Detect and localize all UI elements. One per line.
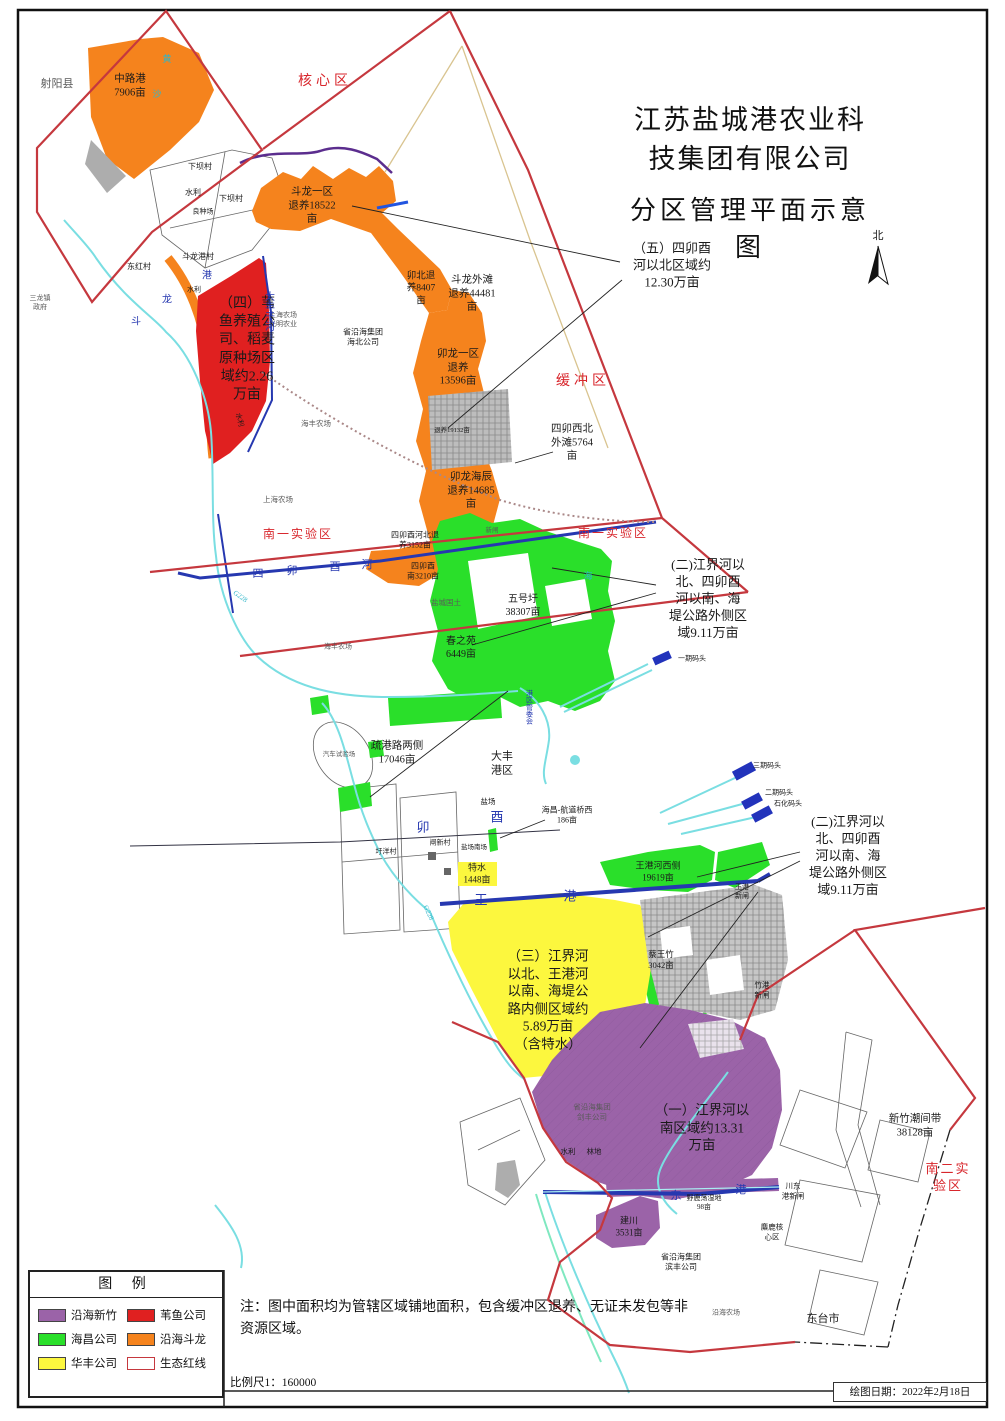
map-canvas: 北射阳县中路港 7906亩核心区下坝村水利下坝村良种场斗龙港村东红村三龙镇 政府… <box>0 0 1005 1421</box>
river-gang-3: 港 <box>736 1183 747 1197</box>
zone-wuhaowei: 五号圩 38307亩 <box>506 593 541 619</box>
farm-shanghai-2: 上海农场 <box>263 495 293 505</box>
zone-maolongyiqu: 卯龙一区 退养 13596亩 <box>437 348 479 389</box>
farm-haibei: 省沿海集团 海北公司 <box>343 328 383 349</box>
legend: 图 例 沿海新竹苇鱼公司海昌公司沿海斗龙华丰公司生态红线 <box>28 1270 224 1398</box>
legend-swatch-purple <box>38 1309 66 1322</box>
zone-haichang-hangdao: 海昌-航道桥西 186亩 <box>542 806 593 827</box>
zone-shugonglu: 疏港路两侧 17046亩 <box>371 739 424 766</box>
company-name: 江苏盐城港农业科技集团有限公司 <box>623 98 878 176</box>
legend-label: 沿海斗龙 <box>160 1331 206 1347</box>
legend-label: 苇鱼公司 <box>160 1307 206 1323</box>
site-yanchangnanchang: 盐场南场 <box>461 844 487 852</box>
annotation-two-a: (二)江界河以 北、四卯酉 河以南、海 堤公路外侧区 域9.11万亩 <box>669 557 747 641</box>
legend-swatch-green <box>38 1333 66 1346</box>
gate-wanggangxinzha: 王港 新闸 <box>735 883 749 901</box>
map-note: 注：图中面积均为管辖区域铺地面积，包含缓冲区退养、无证未发包等非资源区域。 <box>240 1297 692 1340</box>
map-subtitle: 分区管理平面示意图 <box>623 190 878 264</box>
river-wang: 王 <box>474 893 487 910</box>
legend-item-3: 沿海斗龙 <box>127 1331 216 1347</box>
zone-simaoxibei: 四卯西北 外滩5764 亩 <box>551 423 593 464</box>
dock-shihua: 石化码头 <box>774 799 802 808</box>
legend-item-1: 苇鱼公司 <box>127 1307 216 1323</box>
road-g228-2: G228 <box>421 904 436 922</box>
map-title: 江苏盐城港农业科技集团有限公司 分区管理平面示意图 <box>623 98 878 264</box>
legend-title: 图 例 <box>30 1272 222 1298</box>
legend-item-2: 海昌公司 <box>38 1331 127 1347</box>
river-gang-1: 港 <box>202 270 212 283</box>
river-dong: 东 <box>671 1189 682 1203</box>
dock-sanqi: 三期码头 <box>753 761 781 770</box>
legend-items: 沿海新竹苇鱼公司海昌公司沿海斗龙华丰公司生态红线 <box>30 1298 222 1375</box>
zone-wanggang-xice: 王港河西侧 19619亩 <box>635 860 680 883</box>
river-you-1: 酉 <box>330 560 341 574</box>
legend-item-5: 生态红线 <box>127 1355 216 1371</box>
farm-jianfeng: 省沿海集团 剑丰公司 <box>573 1102 611 1122</box>
dock-erqi: 二期码头 <box>765 788 793 797</box>
zone-maobei: 卯北退 养8407 亩 <box>407 270 436 307</box>
farm-yanchengguotu: 盐城国土 <box>431 598 461 608</box>
river-you-2: 酉 <box>490 810 503 827</box>
river-gang-2: 港 <box>563 889 576 906</box>
county-sheyang: 射阳县 <box>41 77 74 91</box>
date-label: 绘图日期：2022年2月18日 <box>833 1382 987 1402</box>
road-g228-1: G228 <box>231 589 249 605</box>
scale-label: 比例尺1：160000 <box>230 1374 316 1390</box>
office-gangqu: 港区管委会 <box>524 690 533 725</box>
legend-swatch-yellow <box>38 1357 66 1370</box>
zone-doulongyiqu: 斗龙一区 退养18522 亩 <box>288 186 335 227</box>
farm-haifeng-1: 海丰农场 <box>301 419 331 429</box>
river-long-1: 龙 <box>162 294 172 307</box>
river-he: 河 <box>362 558 373 572</box>
legend-label: 海昌公司 <box>71 1331 117 1347</box>
legend-swatch-outline <box>127 1357 155 1370</box>
legend-swatch-orange <box>127 1333 155 1346</box>
zone-xinzhu-chaojiandai: 新竹潮间带 38128亩 <box>889 1112 942 1139</box>
zone-huanchongqu: 缓冲区 <box>556 373 610 391</box>
site-lindi: 林地 <box>587 1147 602 1157</box>
gate-xinzha-1: 新闸 <box>486 527 499 535</box>
zone-chunzhiyuan: 春之苑 6449亩 <box>446 635 476 661</box>
gate-chuandonggang: 川东 港新闸 <box>782 1181 805 1201</box>
village-liangzhongchang: 良种场 <box>193 207 214 216</box>
site-qicheshiyanchang: 汽车试验场 <box>323 751 356 759</box>
annotation-three: （三）江界河 以北、王港河 以南、海堤公 路内侧区域约 5.89万亩 （含特水） <box>508 947 589 1052</box>
river-dafengganhe: 大丰干河 <box>262 291 275 331</box>
site-shuili-3: 水利 <box>561 1147 576 1157</box>
legend-item-0: 沿海新竹 <box>38 1307 127 1323</box>
zone-naner-shiyanqu: 南二实验区 <box>920 1161 977 1195</box>
zone-dafenggangqu: 大丰 港区 <box>491 750 513 779</box>
zone-caiwangzhu: 蔡王竹 3042亩 <box>648 949 674 971</box>
village-shuili-4: 水利 <box>233 412 245 428</box>
site-yeludang: 野鹿荡湿地 98亩 <box>687 1194 722 1212</box>
site-milu: 麋鹿核 心区 <box>761 1222 784 1242</box>
village-zhaxincun: 闸新村 <box>430 838 451 847</box>
gate-zhugangxinzha: 竹港 新闸 <box>755 980 770 1000</box>
river-mao-1: 卯 <box>287 564 298 578</box>
legend-label: 生态红线 <box>160 1355 206 1371</box>
legend-label: 华丰公司 <box>71 1355 117 1371</box>
zone-maolonghaichen: 卯龙海辰 退养14685 亩 <box>447 471 494 512</box>
river-si: 四 <box>253 567 264 581</box>
river-sha: 沙 <box>152 89 161 101</box>
village-weiyangcun: 圩洋村 <box>376 847 397 856</box>
zone-simaoyounan: 四卯酉 南3210亩 <box>407 562 439 583</box>
village-xiabacun-1: 下坝村 <box>188 162 212 172</box>
annotation-one: （一）江界河以 南区域约13.31 万亩 <box>655 1102 750 1155</box>
village-donghongcun: 东红村 <box>127 262 151 272</box>
village-doulonggang: 斗龙港村 <box>182 252 214 262</box>
village-xiabacun-2: 下坝村 <box>219 194 243 204</box>
zone-doulongwaitan: 斗龙外滩 退养44481 亩 <box>448 274 495 315</box>
river-mao-2: 卯 <box>416 820 429 837</box>
annotation-two-b: (二)江界河以 北、四卯酉 河以南、海 堤公路外侧区 域9.11万亩 <box>809 814 887 898</box>
zone-jianchuan: 建川 3531亩 <box>615 1215 642 1238</box>
village-shuili-2: 水利 <box>187 285 201 294</box>
zone-hexinqu: 核心区 <box>298 73 352 91</box>
village-sanlongzhen: 三龙镇 政府 <box>30 294 51 312</box>
site-yanchang: 盐场 <box>481 797 496 807</box>
zone-teshui: 特水 1448亩 <box>463 862 490 885</box>
legend-label: 沿海新竹 <box>71 1307 117 1323</box>
river-dou-1: 斗 <box>131 316 141 329</box>
farm-yanhai: 沿海农场 <box>712 1308 740 1317</box>
zone-nanyi-right: 南一实验区 <box>578 526 648 542</box>
zone-tuiyang19132: 退养19132亩 <box>434 427 470 435</box>
dock-yiqi: 一期码头 <box>678 654 706 663</box>
farm-haifeng-2: 海丰农场 <box>324 642 352 651</box>
village-shuili-1: 水利 <box>185 188 201 198</box>
zone-nanyi-left: 南一实验区 <box>263 527 333 543</box>
zone-zhonglugang: 中路港 7906亩 <box>114 72 146 99</box>
river-huang: 黄 <box>162 54 171 66</box>
farm-binfeng: 省沿海集团 滨丰公司 <box>661 1253 701 1274</box>
legend-swatch-red <box>127 1309 155 1322</box>
zone-simaoyouhebei: 四卯酉河北退 养3152亩 <box>391 531 439 552</box>
city-dongtai: 东台市 <box>807 1312 840 1326</box>
legend-item-4: 华丰公司 <box>38 1355 127 1371</box>
river-hai-1: 海 <box>583 571 592 583</box>
